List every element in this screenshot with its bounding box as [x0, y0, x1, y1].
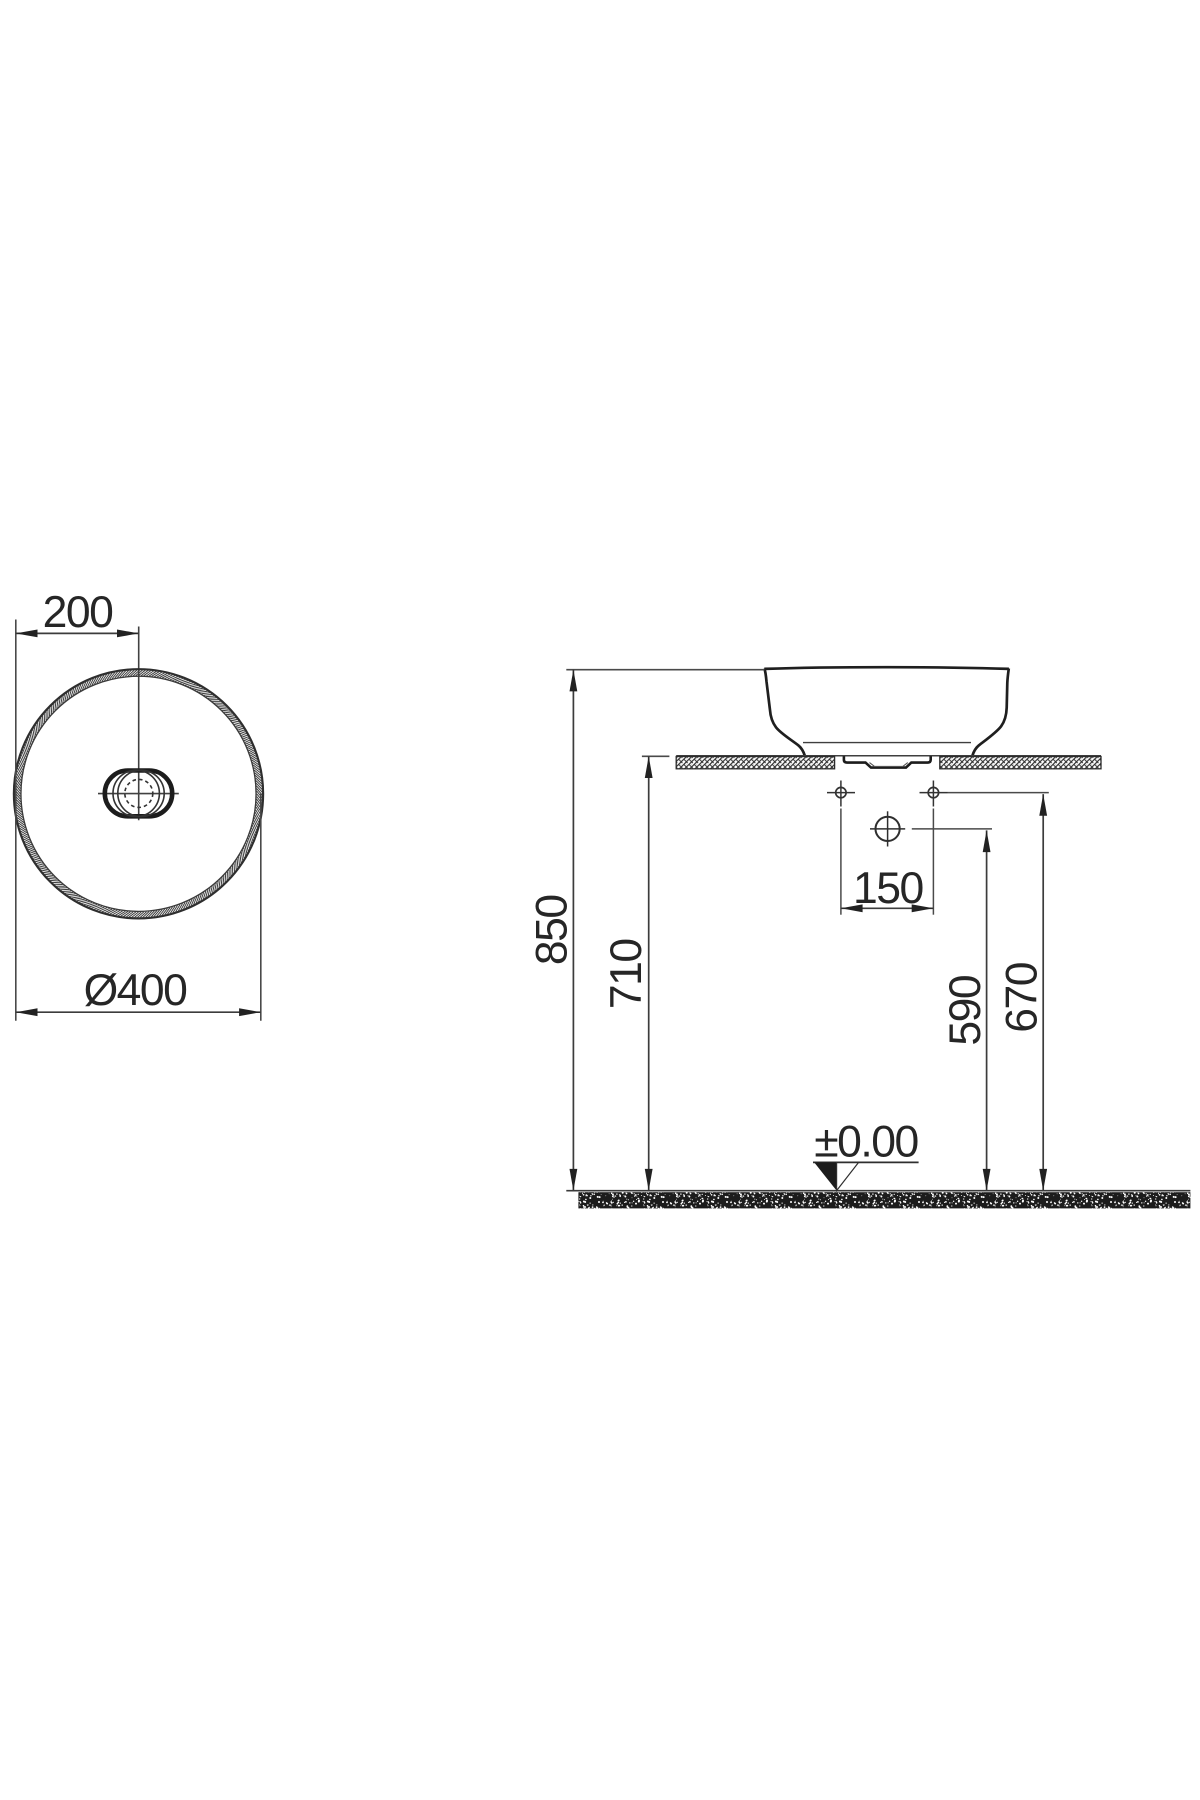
svg-text:710: 710 [602, 939, 651, 1009]
svg-text:150: 150 [853, 864, 923, 913]
svg-text:±0.00: ±0.00 [814, 1118, 918, 1167]
svg-text:Ø400: Ø400 [84, 966, 188, 1015]
svg-text:200: 200 [43, 588, 113, 637]
svg-text:590: 590 [941, 975, 990, 1045]
svg-text:850: 850 [527, 895, 576, 965]
svg-text:670: 670 [998, 962, 1047, 1032]
